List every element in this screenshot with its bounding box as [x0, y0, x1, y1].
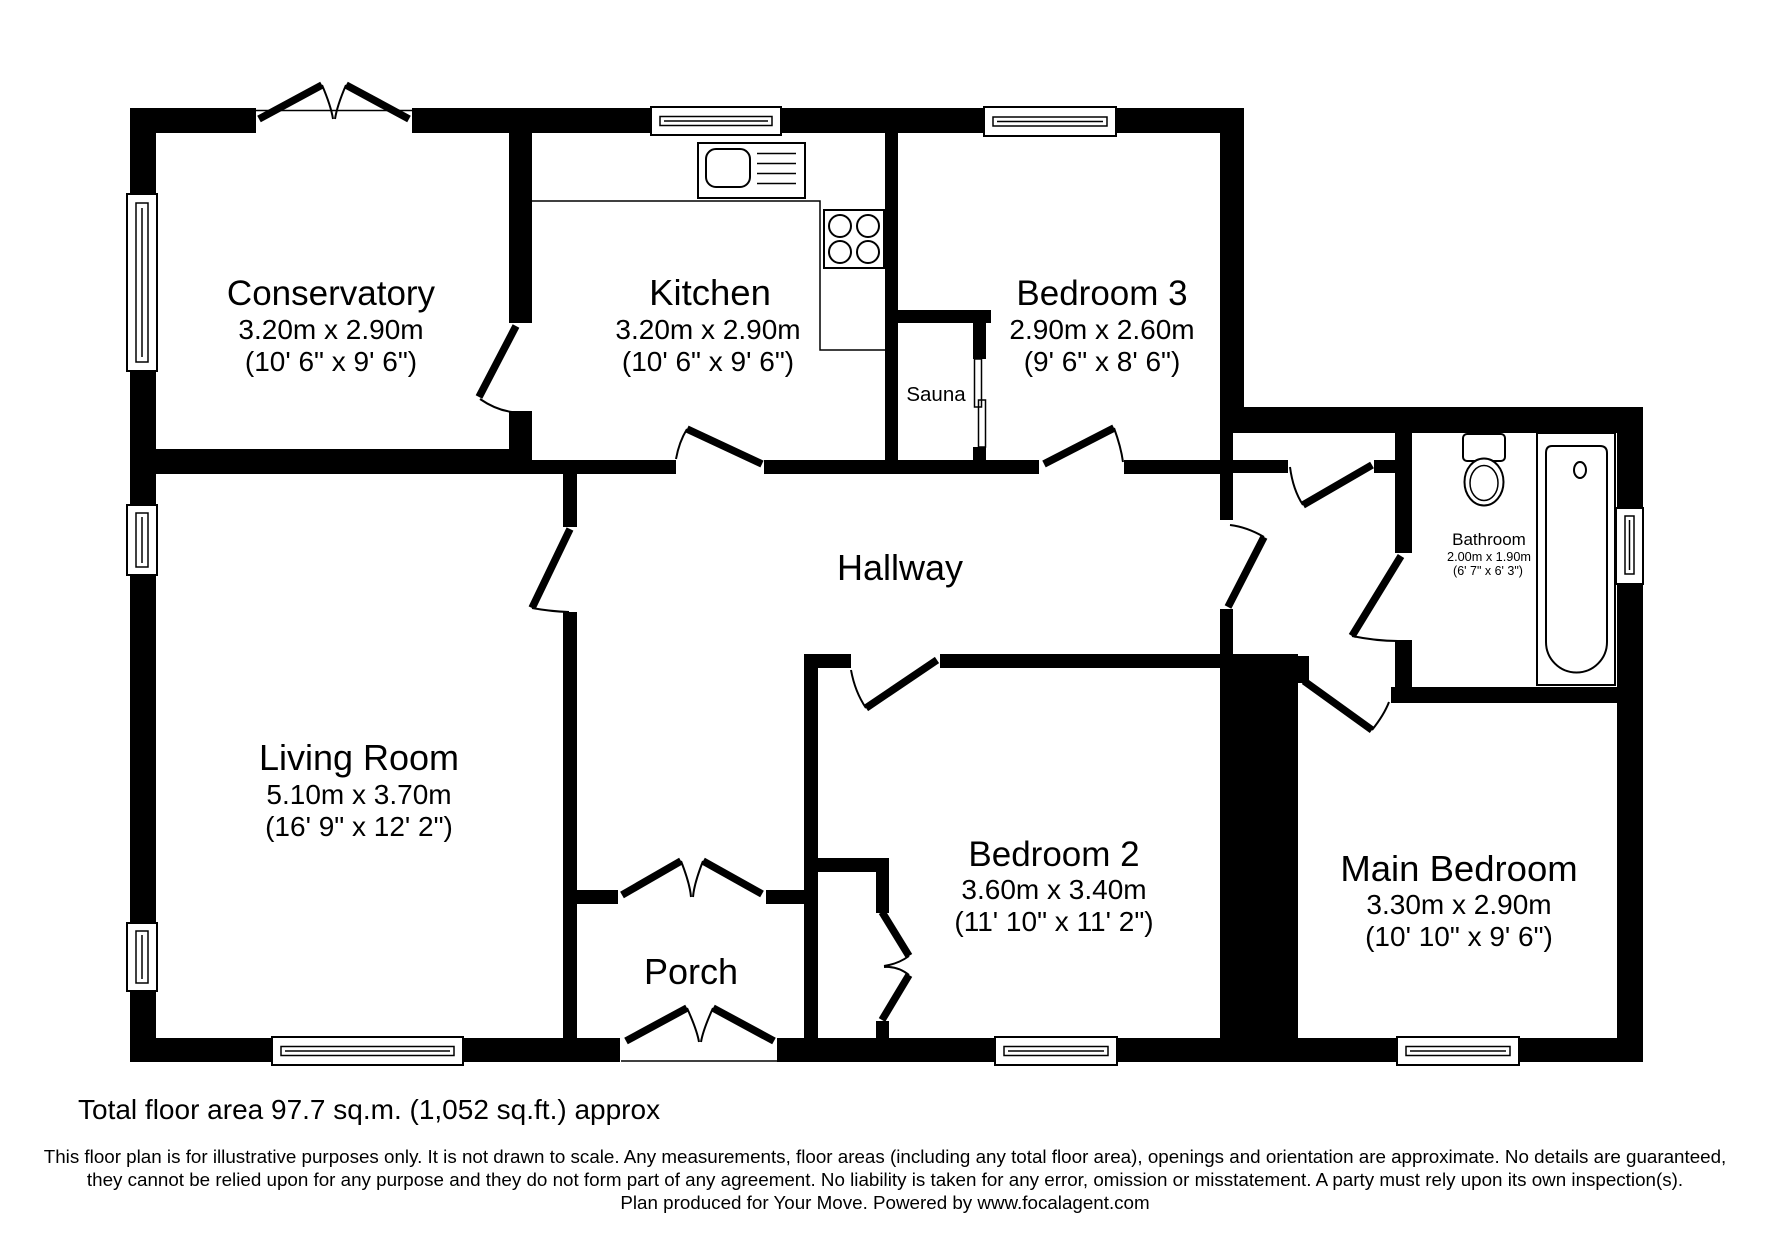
svg-text:Bathroom: Bathroom: [1452, 530, 1526, 549]
svg-text:Conservatory: Conservatory: [227, 274, 436, 313]
svg-text:Hallway: Hallway: [837, 547, 963, 588]
svg-text:(10' 10" x 9' 6"): (10' 10" x 9' 6"): [1365, 921, 1553, 952]
svg-text:This floor plan is for illustr: This floor plan is for illustrative purp…: [44, 1146, 1727, 1167]
svg-text:3.20m x 2.90m: 3.20m x 2.90m: [238, 314, 423, 345]
svg-text:3.60m x 3.40m: 3.60m x 3.40m: [961, 874, 1146, 905]
svg-text:Kitchen: Kitchen: [649, 272, 771, 313]
svg-text:3.20m x 2.90m: 3.20m x 2.90m: [615, 314, 800, 345]
svg-text:2.90m x 2.60m: 2.90m x 2.60m: [1009, 314, 1194, 345]
svg-text:Bedroom 3: Bedroom 3: [1016, 274, 1187, 313]
svg-text:Living Room: Living Room: [259, 737, 459, 778]
svg-text:Total floor area 97.7 sq.m. (1: Total floor area 97.7 sq.m. (1,052 sq.ft…: [78, 1094, 660, 1125]
svg-text:Porch: Porch: [644, 951, 738, 992]
svg-text:(9' 6" x 8' 6"): (9' 6" x 8' 6"): [1024, 346, 1181, 377]
svg-text:(6' 7" x 6' 3"): (6' 7" x 6' 3"): [1453, 564, 1523, 578]
svg-text:5.10m x 3.70m: 5.10m x 3.70m: [266, 779, 451, 810]
svg-text:Sauna: Sauna: [906, 383, 966, 406]
svg-text:they cannot be relied upon for: they cannot be relied upon for any purpo…: [87, 1169, 1683, 1190]
svg-text:(10' 6" x 9' 6"): (10' 6" x 9' 6"): [622, 346, 794, 377]
svg-text:(10' 6" x 9' 6"): (10' 6" x 9' 6"): [245, 346, 417, 377]
svg-text:Main Bedroom: Main Bedroom: [1340, 848, 1577, 889]
svg-text:Bedroom 2: Bedroom 2: [968, 835, 1139, 874]
svg-text:Plan produced for Your Move. P: Plan produced for Your Move. Powered by …: [620, 1192, 1149, 1213]
svg-text:3.30m x 2.90m: 3.30m x 2.90m: [1366, 889, 1551, 920]
svg-text:2.00m x 1.90m: 2.00m x 1.90m: [1447, 550, 1531, 564]
svg-text:(16' 9" x 12' 2"): (16' 9" x 12' 2"): [265, 811, 453, 842]
svg-text:(11' 10" x 11' 2"): (11' 10" x 11' 2"): [954, 906, 1153, 937]
